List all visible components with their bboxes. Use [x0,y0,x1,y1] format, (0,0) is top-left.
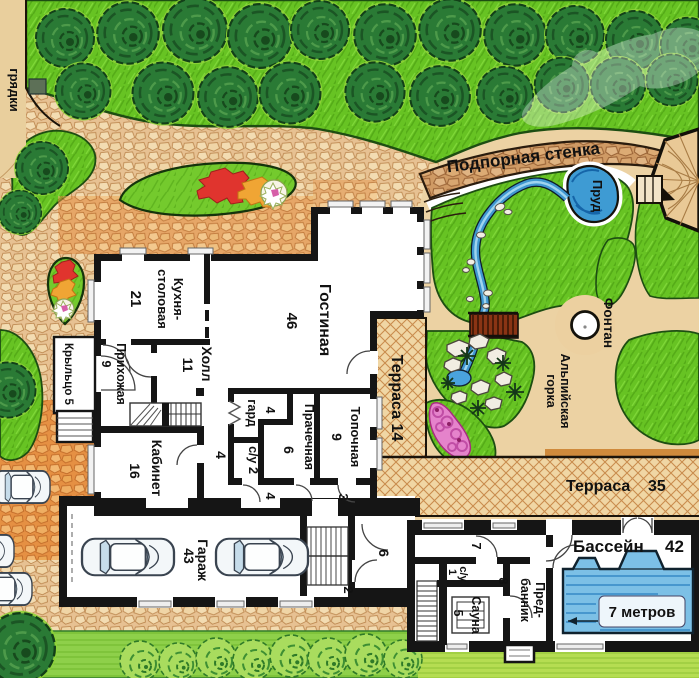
svg-text:6: 6 [376,549,392,557]
svg-text:43: 43 [181,548,197,564]
svg-text:Терраса: Терраса [566,478,630,495]
svg-text:Пруд: Пруд [590,180,605,213]
svg-text:Крыльцо 5: Крыльцо 5 [62,343,74,406]
svg-text:2: 2 [341,586,356,593]
svg-text:7 метров: 7 метров [609,604,676,621]
svg-text:1: 1 [446,569,458,575]
svg-text:Топочная: Топочная [348,407,363,468]
svg-text:42: 42 [665,537,684,556]
svg-text:Гостиная: Гостиная [316,284,333,356]
svg-text:8: 8 [496,578,510,585]
svg-text:4: 4 [263,492,278,500]
svg-text:35: 35 [648,478,666,495]
svg-text:Кабинет: Кабинет [149,440,165,497]
svg-text:Фонтан: Фонтан [601,298,616,348]
svg-text:21: 21 [127,291,144,308]
svg-text:4: 4 [213,451,229,459]
svg-text:горка: горка [544,374,558,409]
svg-text:3: 3 [336,493,351,500]
svg-text:16: 16 [127,463,143,479]
svg-text:9: 9 [99,361,113,368]
svg-text:с/у 2: с/у 2 [246,446,260,474]
svg-text:Терраса 14: Терраса 14 [388,355,405,442]
svg-text:Кухня-: Кухня- [171,278,186,320]
svg-text:Сауна: Сауна [469,596,483,635]
svg-text:6: 6 [281,446,297,454]
svg-text:Холл: Холл [199,346,215,381]
svg-text:Бассейн: Бассейн [573,537,644,556]
svg-text:столовая: столовая [155,269,170,329]
svg-text:5: 5 [451,610,465,617]
svg-text:гард: гард [245,399,259,426]
svg-text:7: 7 [469,542,484,549]
svg-text:11: 11 [180,358,196,373]
svg-text:9: 9 [329,433,345,441]
svg-text:Альпийская: Альпийская [558,353,572,428]
svg-text:46: 46 [283,313,300,330]
svg-text:Пред-: Пред- [533,582,547,618]
svg-text:грядки: грядки [7,68,22,112]
svg-text:Прихожая: Прихожая [114,343,128,405]
svg-text:4: 4 [263,407,277,414]
svg-text:Прачечная: Прачечная [302,404,316,470]
svg-text:банник: банник [518,578,532,622]
